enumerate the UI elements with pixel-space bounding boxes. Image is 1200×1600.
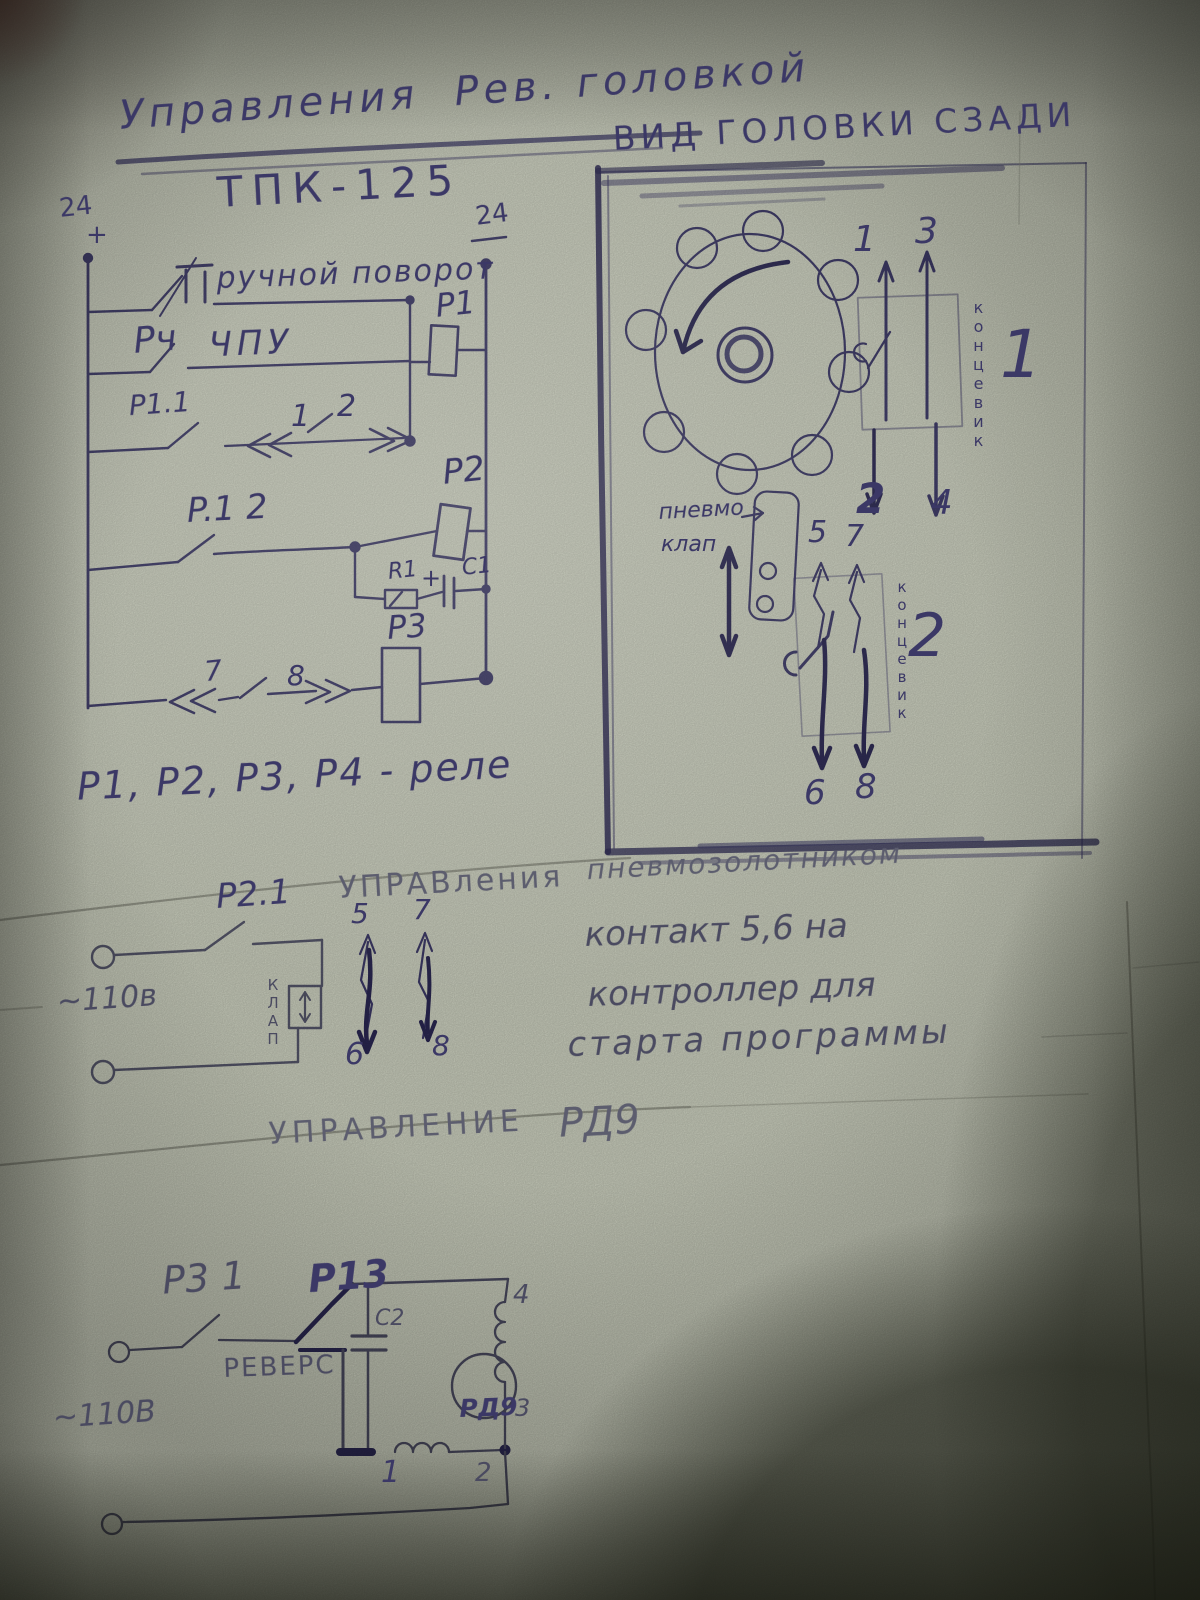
ls2-t5: 5	[808, 518, 827, 548]
pos7-label: 7	[203, 656, 224, 686]
hub-inner	[727, 337, 761, 371]
pos8-label: 8	[287, 662, 305, 690]
hand-drawn-schematic-photo: Управления Рев. головкой ТПК-125 ВИД ГОЛ…	[0, 0, 1200, 1600]
rd9-t2: 2	[475, 1460, 492, 1486]
pos1-label: 1	[291, 402, 310, 432]
relay-p3-coil	[382, 648, 420, 722]
ls1-t1: 1	[853, 222, 876, 258]
note-line2: контроллер для	[587, 968, 876, 1012]
page-title-line2: ТПК-125	[216, 159, 463, 214]
bus-left-label: 24	[58, 193, 94, 222]
pneumo-word1: пневмо	[658, 498, 744, 524]
r1-label: R1	[387, 559, 418, 584]
cap-c2	[352, 1336, 386, 1350]
c2-label: C2	[375, 1308, 404, 1330]
ls1-number: 1	[1000, 322, 1042, 388]
p12-label: P.1 2	[186, 490, 268, 528]
cnc-label: ЧПУ	[208, 325, 294, 362]
p1-label: P1	[434, 286, 477, 322]
note-line1: контакт 5,6 на	[584, 909, 848, 952]
p2-label: P2	[441, 452, 486, 490]
mid-t5: 5	[351, 900, 369, 928]
c1-label: C1	[461, 555, 492, 580]
relay-p1-coil	[429, 325, 459, 375]
p11-label: P1.1	[128, 388, 191, 420]
p4-contact-label: Рч	[132, 320, 178, 360]
bus-left-plus: +	[86, 222, 108, 248]
pneumo-word2: клап	[661, 534, 716, 556]
valve-vertical-label: КЛАП	[265, 976, 280, 1062]
mid-t6: 6	[345, 1040, 364, 1070]
mid-t8: 8	[432, 1032, 450, 1060]
winding-3-4	[495, 1302, 505, 1382]
ls2-t7: 7	[845, 522, 864, 552]
turret-disc	[626, 211, 869, 494]
ls2-t8: 8	[855, 770, 877, 804]
voltage-110-mid: ~110в	[56, 981, 158, 1018]
p21-label: P2.1	[215, 875, 292, 914]
rd9-t1: 1	[381, 1458, 400, 1488]
ls2-t6: 6	[804, 776, 826, 810]
ls2-number: 2	[908, 606, 946, 666]
ls1-vertical-label: концевик	[970, 298, 986, 448]
mid-t7: 7	[413, 896, 431, 924]
motor-label: РД9	[459, 1394, 518, 1421]
rd9-circuit	[102, 1279, 516, 1534]
c1-plus: +	[421, 566, 441, 590]
rd9-t3: 3	[515, 1396, 530, 1420]
p31-label: P3 1	[161, 1256, 247, 1300]
p13-label: P13	[307, 1254, 390, 1298]
winding-1-2	[395, 1443, 449, 1452]
voltage-110-bottom: ~110В	[52, 1397, 157, 1434]
cap-c1	[444, 576, 454, 608]
ls1-t3: 3	[915, 214, 938, 250]
p12-contact-row	[88, 504, 486, 570]
limit-switch-2	[785, 563, 891, 768]
rd9-t4: 4	[513, 1282, 530, 1308]
reverse-label: РЕВЕРС	[223, 1352, 336, 1382]
rd9-heading-2: РД9	[558, 1100, 641, 1144]
pos2-label: 2	[337, 392, 356, 422]
p3-label: P3	[386, 609, 428, 644]
bus-right-label: 24	[474, 200, 510, 230]
relay-p2-coil	[434, 504, 471, 560]
ls2-vertical-label: концевик	[894, 578, 909, 738]
ls1-t2: 2	[856, 478, 885, 520]
ls1-t4: 4	[931, 486, 953, 520]
